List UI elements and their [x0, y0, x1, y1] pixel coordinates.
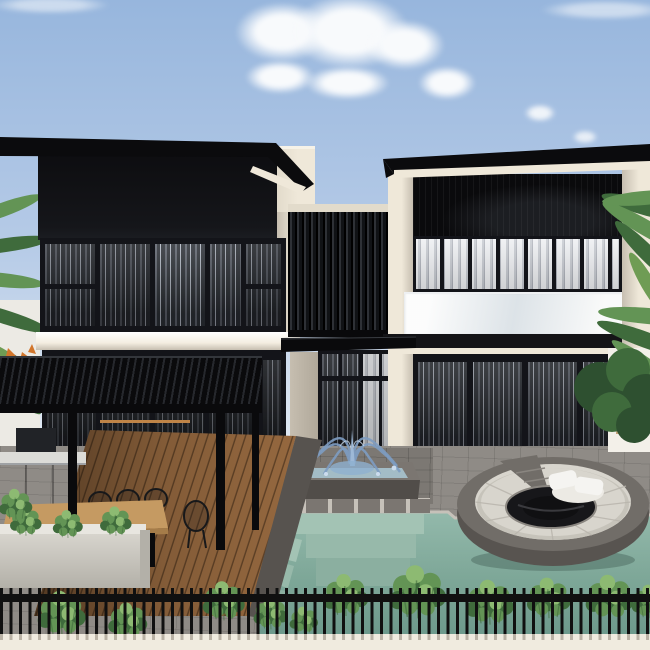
pergola-roof: [0, 356, 262, 408]
pergola-post: [252, 410, 259, 530]
planter-side: [140, 530, 150, 588]
cloud-small: [572, 130, 598, 144]
perimeter-wall-shadows: [0, 634, 650, 640]
left-building-upper-facade: [38, 152, 286, 240]
window-mullion: [45, 284, 95, 289]
cloud-small: [418, 66, 476, 100]
dark-shrub-clump: [574, 348, 650, 443]
window-pane: [100, 244, 150, 326]
palm-tree-right: [552, 168, 650, 444]
outdoor-kitchen-appliance: [16, 428, 56, 452]
planter-box: [0, 534, 144, 588]
window-pane: [155, 244, 205, 326]
floor-slab: [36, 332, 300, 350]
pergola-hanging-rod: [100, 420, 190, 423]
cloud-large: [365, 20, 445, 70]
pergola-post: [216, 410, 225, 550]
fence-pickets: [0, 600, 650, 638]
fountain-platform: [276, 448, 433, 504]
privacy-screen-cap: [288, 204, 388, 212]
privacy-screen: [288, 212, 388, 330]
cloud-small: [524, 104, 556, 122]
privacy-screen-rail: [288, 330, 388, 337]
window-pane: [210, 244, 241, 326]
window-mullion: [246, 284, 281, 289]
left-window-wall: [40, 238, 286, 332]
cloud-medium: [305, 66, 390, 100]
cloud-medium: [245, 60, 315, 94]
center-jamb-left: [290, 352, 318, 458]
architectural-render: [0, 0, 650, 650]
